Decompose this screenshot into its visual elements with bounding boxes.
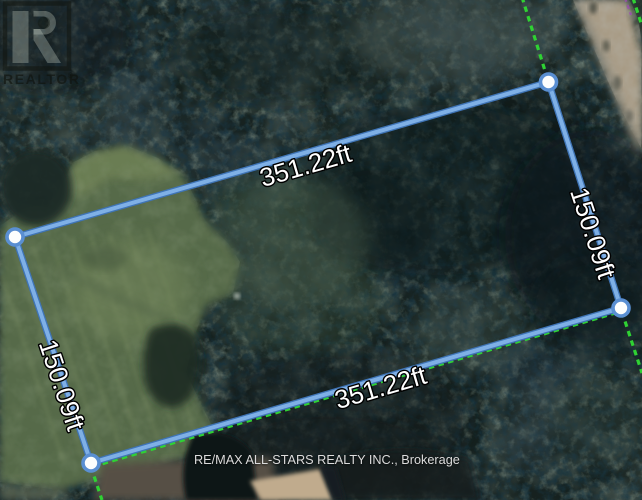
- svg-text:®: ®: [68, 72, 74, 80]
- svg-text:RE/MAX ALL-STARS REALTY INC.,: RE/MAX ALL-STARS REALTY INC., Brokerage: [194, 453, 460, 467]
